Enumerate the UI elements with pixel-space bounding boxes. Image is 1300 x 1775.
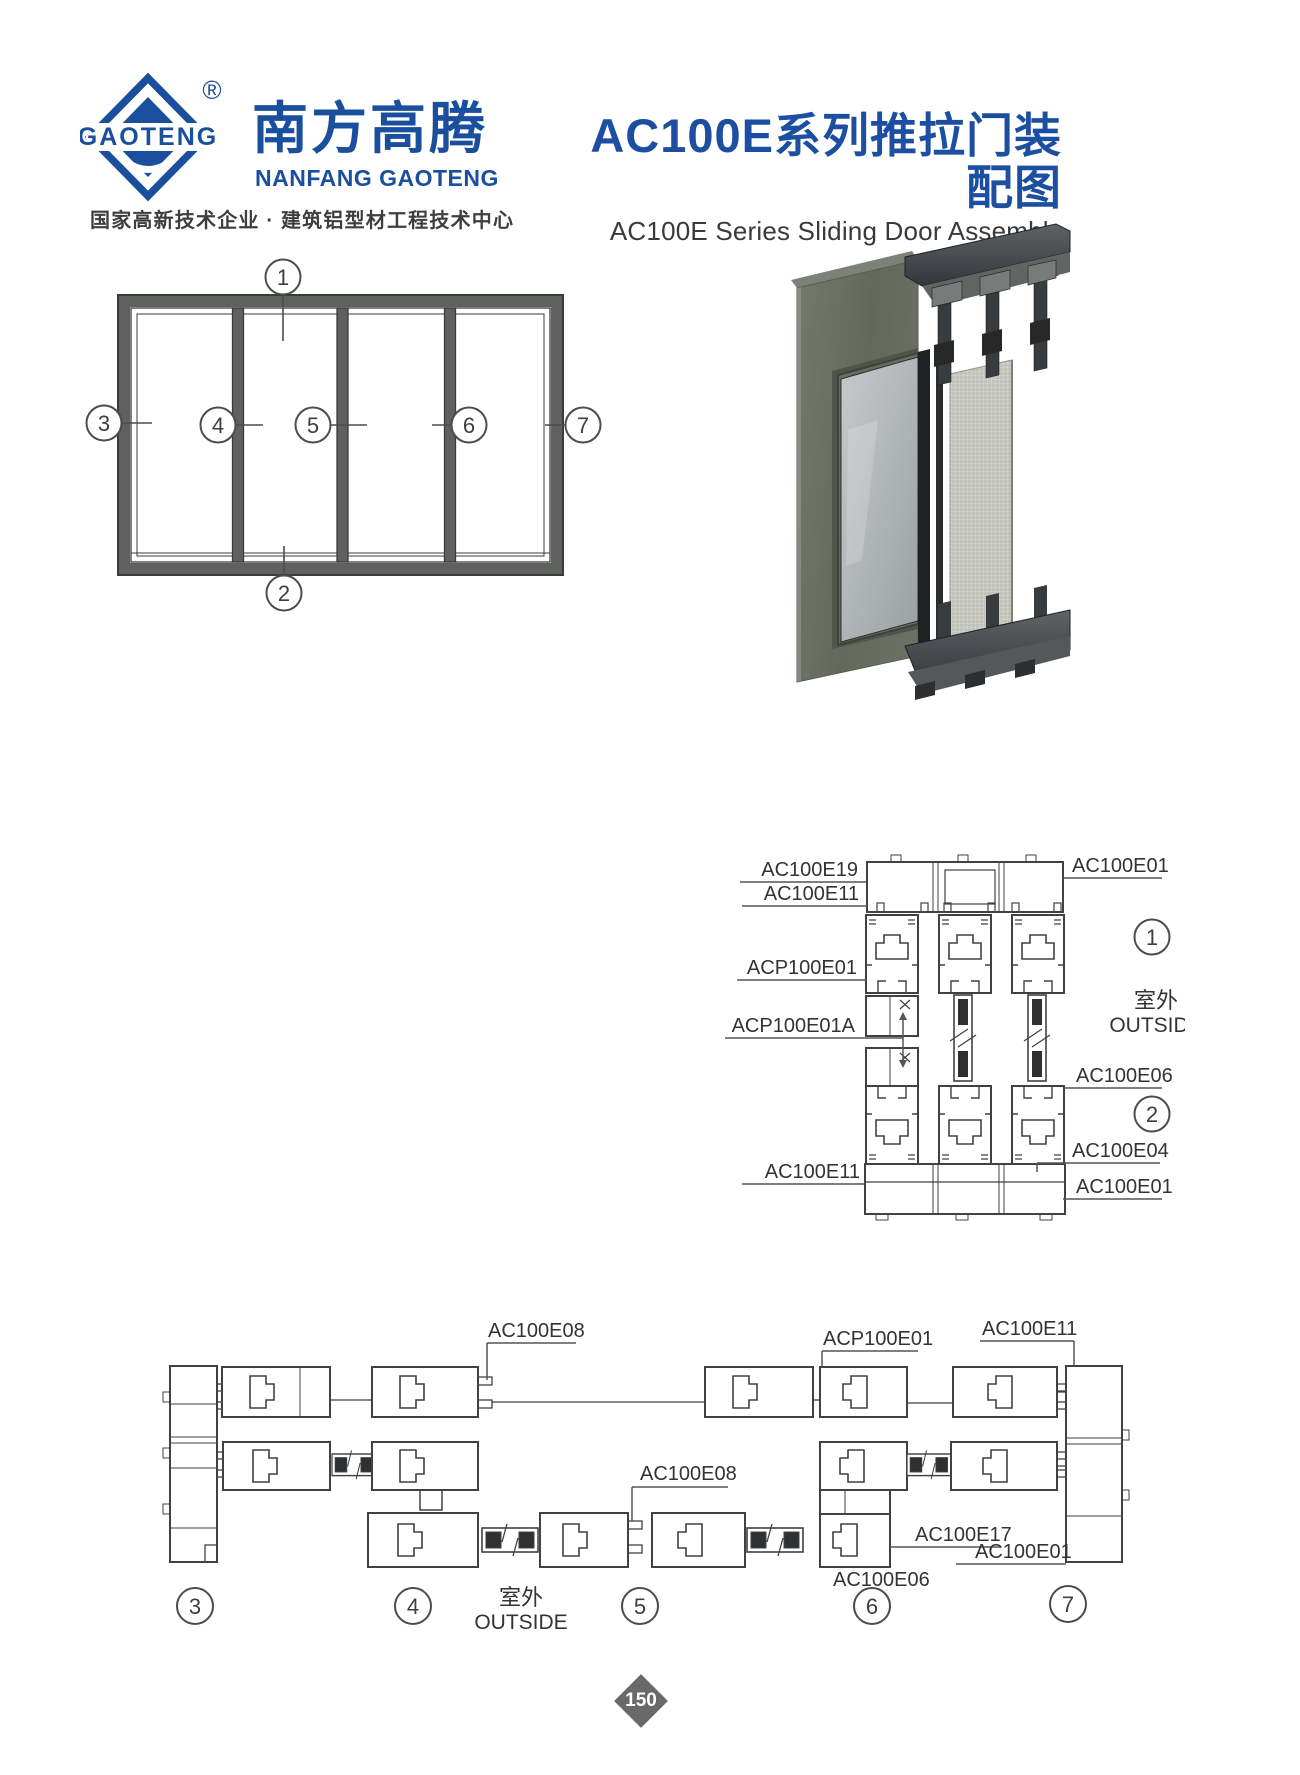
svg-text:1: 1 bbox=[277, 265, 289, 290]
sash-top-profiles bbox=[866, 915, 1064, 993]
label-acp100e01: ACP100E01 bbox=[747, 957, 857, 979]
label-ac100e01-bottom: AC100E01 bbox=[1076, 1176, 1173, 1198]
svg-text:2: 2 bbox=[278, 581, 290, 606]
label-ac100e11-bottom: AC100E11 bbox=[765, 1161, 860, 1183]
left-jamb-profile bbox=[163, 1366, 226, 1562]
logo-wordmark: GAOTENG bbox=[80, 123, 218, 151]
outside-label-en: OUTSIDE bbox=[1109, 1014, 1185, 1037]
registered-mark: ® bbox=[202, 75, 221, 105]
horizontal-section-drawing: AC100E08 AC100E08 ACP100E01 AC100E11 AC1… bbox=[130, 1295, 1150, 1640]
callout-4: 4 bbox=[201, 408, 236, 443]
svg-text:3: 3 bbox=[189, 1594, 201, 1619]
svg-text:7: 7 bbox=[577, 413, 589, 438]
page-title-cn: AC100E系列推拉门装配图 bbox=[560, 110, 1062, 213]
top-track-profile bbox=[867, 855, 1063, 912]
callout-5: 5 bbox=[296, 408, 331, 443]
svg-text:5: 5 bbox=[307, 413, 319, 438]
assembly-drawing-page: { "brand": { "logo_text": "GAOTENG", "re… bbox=[0, 0, 1300, 1775]
brand-logo-block: GAOTENG ® 南方高腾 NANFANG GAOTENG 国家高新技术企业 … bbox=[80, 50, 520, 235]
callout-section-2: 2 bbox=[1135, 1097, 1170, 1132]
brand-name-en: NANFANG GAOTENG bbox=[255, 165, 499, 191]
label-acp100e01a: ACP100E01A bbox=[732, 1015, 856, 1037]
label-ac100e08-mid: AC100E08 bbox=[640, 1463, 737, 1485]
callout-section-1: 1 bbox=[1135, 920, 1170, 955]
svg-text:4: 4 bbox=[212, 413, 224, 438]
svg-text:5: 5 bbox=[634, 1594, 646, 1619]
svg-text:7: 7 bbox=[1062, 1592, 1074, 1617]
glass-interlocks bbox=[950, 995, 1050, 1081]
label-ac100e04: AC100E04 bbox=[1072, 1140, 1169, 1162]
callout-1: 1 bbox=[266, 260, 301, 295]
render-mesh-screen bbox=[950, 360, 1012, 650]
callout-section-4: 4 bbox=[395, 1588, 431, 1624]
callout-7: 7 bbox=[566, 408, 601, 443]
label-ac100e11-h: AC100E11 bbox=[982, 1318, 1077, 1340]
label-ac100e11-top: AC100E11 bbox=[764, 883, 859, 905]
hsec-callouts: 3 4 5 6 7 bbox=[177, 1586, 1086, 1624]
page-number: 150 bbox=[622, 1682, 660, 1720]
label-ac100e08-top: AC100E08 bbox=[488, 1320, 585, 1342]
outside-label-cn-bottom: 室外 bbox=[499, 1585, 543, 1610]
callout-section-7: 7 bbox=[1050, 1586, 1086, 1622]
label-ac100e01-h: AC100E01 bbox=[975, 1541, 1072, 1563]
brand-tagline: 国家高新技术企业 · 建筑铝型材工程技术中心 bbox=[90, 208, 514, 232]
sash-bottom-profiles bbox=[866, 1086, 1064, 1164]
vertical-section-drawing: AC100E19 AC100E11 ACP100E01 ACP100E01A A… bbox=[715, 835, 1185, 1230]
callout-6: 6 bbox=[452, 408, 487, 443]
bottom-track-profile bbox=[865, 1164, 1065, 1220]
door-elevation-drawing: 1 2 3 4 5 6 7 bbox=[60, 235, 620, 620]
callout-section-3: 3 bbox=[177, 1588, 213, 1624]
label-ac100e19: AC100E19 bbox=[761, 859, 858, 881]
label-ac100e01-top: AC100E01 bbox=[1072, 855, 1169, 877]
right-jamb-profile bbox=[1057, 1366, 1129, 1562]
svg-text:1: 1 bbox=[1146, 925, 1158, 950]
svg-text:4: 4 bbox=[407, 1594, 419, 1619]
label-ac100e06-h: AC100E06 bbox=[833, 1569, 930, 1591]
gaoteng-logo-icon: GAOTENG ® bbox=[80, 75, 222, 196]
hsec-row-bottom bbox=[368, 1490, 890, 1567]
label-ac100e06: AC100E06 bbox=[1076, 1065, 1173, 1087]
callout-section-5: 5 bbox=[622, 1588, 658, 1624]
brand-name-cn: 南方高腾 bbox=[252, 97, 488, 160]
svg-text:6: 6 bbox=[866, 1594, 878, 1619]
label-acp100e01-h: ACP100E01 bbox=[823, 1328, 933, 1350]
svg-text:2: 2 bbox=[1146, 1102, 1158, 1127]
outside-label-en-bottom: OUTSIDE bbox=[474, 1611, 567, 1634]
callout-section-6: 6 bbox=[854, 1588, 890, 1624]
panel-profiles bbox=[866, 996, 918, 1086]
callout-3: 3 bbox=[87, 406, 122, 441]
profile-3d-render bbox=[660, 210, 1120, 710]
svg-text:3: 3 bbox=[98, 411, 110, 436]
render-glass bbox=[841, 343, 943, 651]
outside-label-cn: 室外 bbox=[1134, 988, 1178, 1013]
hsec-row-top bbox=[222, 1367, 1066, 1417]
callout-2: 2 bbox=[267, 576, 302, 611]
svg-text:6: 6 bbox=[463, 413, 475, 438]
page-number-diamond: 150 bbox=[614, 1674, 668, 1728]
